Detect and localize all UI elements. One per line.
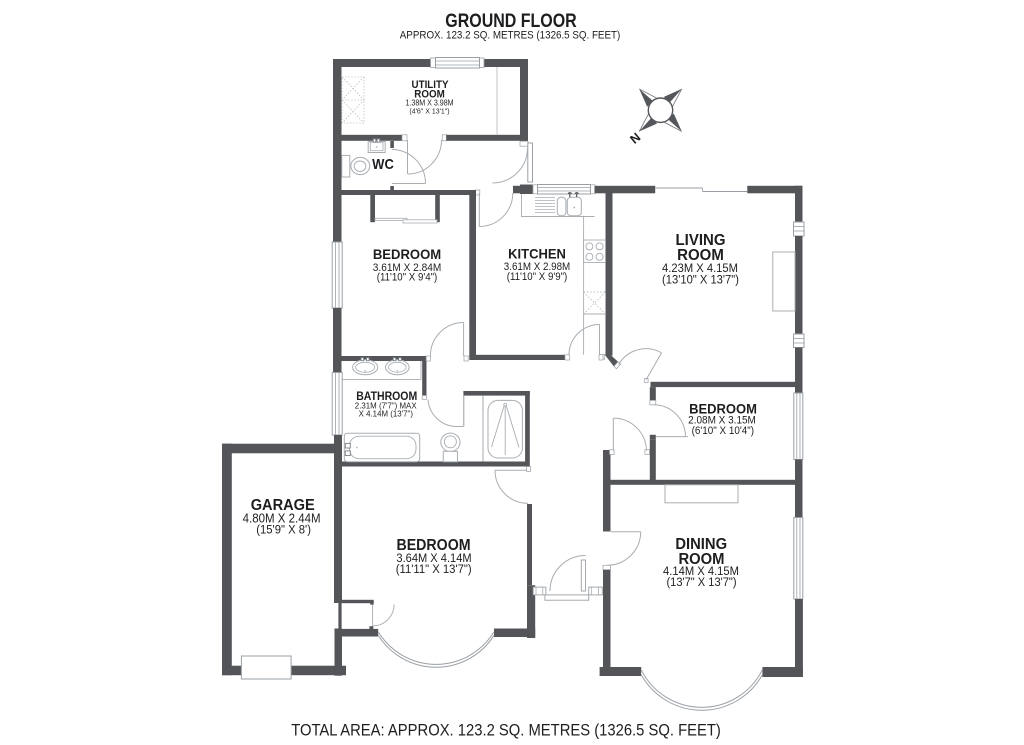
svg-text:WC: WC	[372, 157, 394, 173]
svg-text:X 4.14M (13'7"): X 4.14M (13'7")	[359, 408, 414, 418]
svg-text:(11'11" X 13'7"): (11'11" X 13'7")	[396, 562, 472, 577]
svg-text:(11'10" X 9'9"): (11'10" X 9'9")	[507, 272, 568, 284]
svg-text:(6'10" X 10'4"): (6'10" X 10'4")	[692, 426, 754, 438]
svg-text:(4'6" X 13'1"): (4'6" X 13'1")	[409, 106, 449, 115]
svg-text:(15'9" X 8'): (15'9" X 8')	[256, 522, 311, 537]
svg-text:(13'10" X 13'7"): (13'10" X 13'7")	[662, 273, 739, 287]
svg-text:(13'7" X 13'7"): (13'7" X 13'7")	[666, 576, 736, 590]
svg-text:N: N	[627, 130, 643, 147]
svg-text:BEDROOM: BEDROOM	[373, 247, 441, 262]
svg-text:TOTAL AREA: APPROX. 123.2 SQ.: TOTAL AREA: APPROX. 123.2 SQ. METRES (13…	[291, 722, 721, 740]
svg-text:KITCHEN: KITCHEN	[508, 246, 566, 262]
svg-text:APPROX. 123.2 SQ. METRES (1326: APPROX. 123.2 SQ. METRES (1326.5 SQ. FEE…	[400, 30, 620, 42]
svg-text:GROUND FLOOR: GROUND FLOOR	[445, 10, 577, 32]
svg-text:(11'10" X 9'4"): (11'10" X 9'4")	[377, 272, 438, 284]
